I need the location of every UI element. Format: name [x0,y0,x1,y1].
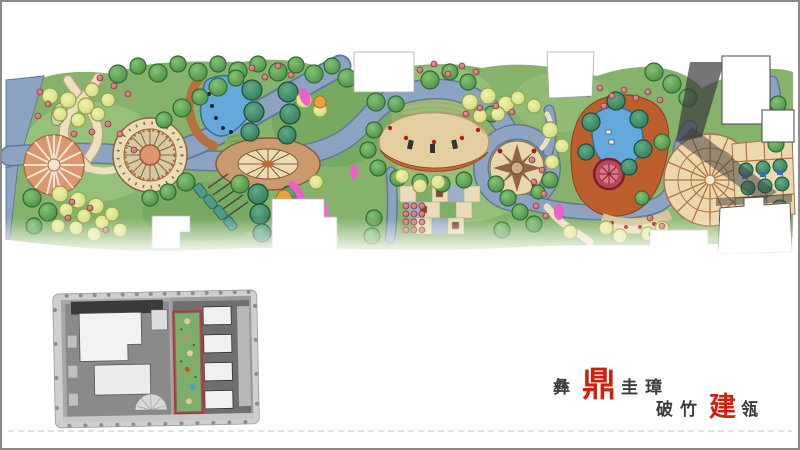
seal-signature-line1: 彝 鼎 圭璋 [551,364,671,406]
fan-plaza-left [24,135,84,195]
mall-block [65,300,171,418]
band-fade [2,218,798,262]
seal-accent-char: 鼎 [582,368,616,402]
seal-char: 彝 [553,373,577,398]
presentation-slide: 彝 鼎 圭璋 破竹 建 瓴 [0,0,800,450]
seal-accent-char: 建 [709,394,736,421]
seal-signature-line2: 破竹 建 瓴 [654,390,767,424]
slide-graphics [2,2,798,448]
seal-char: 瓴 [741,395,765,420]
masterplan-band [2,52,798,262]
highlight-strip [175,313,201,411]
site-key-plan [53,290,260,428]
residential-block [171,296,254,420]
red-feature-pavilion [594,159,624,189]
mosaic-circle-plaza [113,118,187,192]
seal-char: 破竹 [656,395,704,420]
